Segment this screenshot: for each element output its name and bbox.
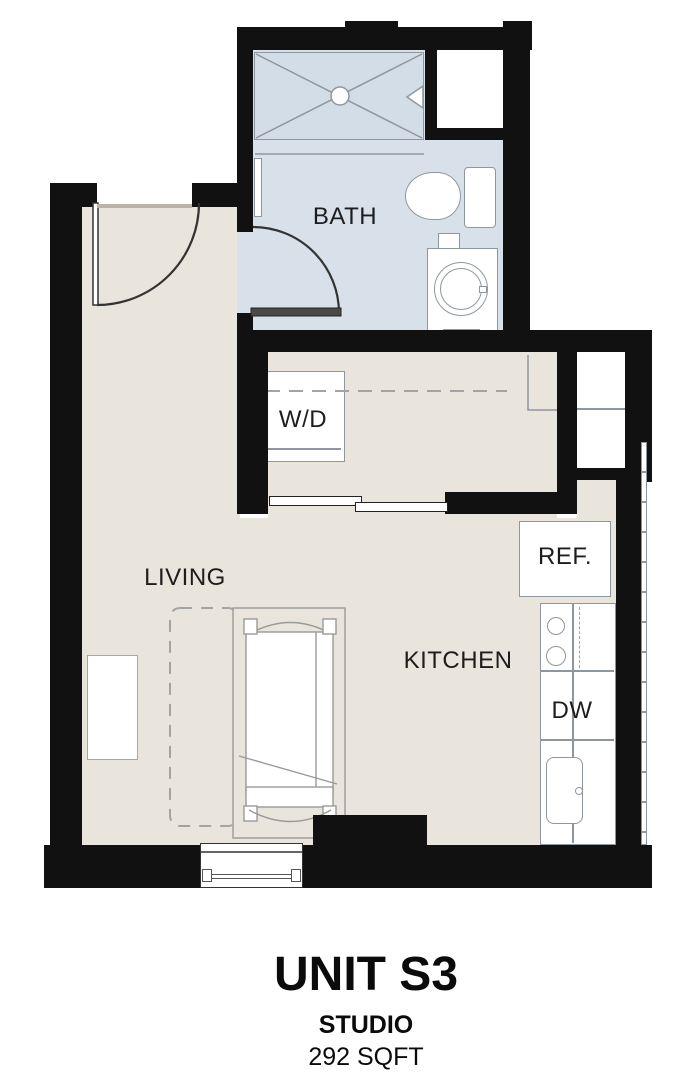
entry-threshold — [97, 204, 192, 208]
title-block: UNIT S3 STUDIO 292 SQFT — [40, 951, 692, 1070]
facade-glazing-strip — [641, 442, 647, 845]
unit-title: UNIT S3 — [40, 951, 692, 999]
window-rail-line — [201, 851, 302, 853]
living-label: LIVING — [144, 564, 226, 592]
dishwasher-label: DW — [552, 697, 593, 725]
refrigerator-label: REF. — [538, 543, 592, 571]
window-stop-left — [202, 869, 212, 882]
bath-label: BATH — [313, 203, 377, 231]
entry-door-swing-arc — [97, 203, 199, 305]
bath-door-leaf — [251, 308, 341, 316]
window-stop-right — [291, 869, 301, 882]
closet-sliding-panel-1 — [269, 496, 362, 506]
window — [200, 843, 303, 888]
unit-area: 292 SQFT — [40, 1045, 692, 1070]
door-layer — [0, 0, 694, 900]
bath-door-swing-arc — [253, 227, 339, 313]
closet-sliding-panel-2 — [355, 502, 448, 512]
window-sill-bar — [210, 874, 293, 879]
floor-plan-canvas: BATH W/D LIVING KITCHEN REF. DW UNIT S3 … — [0, 0, 694, 1080]
entry-door-leaf — [93, 203, 98, 305]
kitchen-label: KITCHEN — [404, 647, 513, 675]
washer-dryer-label: W/D — [279, 406, 327, 434]
unit-type: STUDIO — [40, 1013, 692, 1038]
